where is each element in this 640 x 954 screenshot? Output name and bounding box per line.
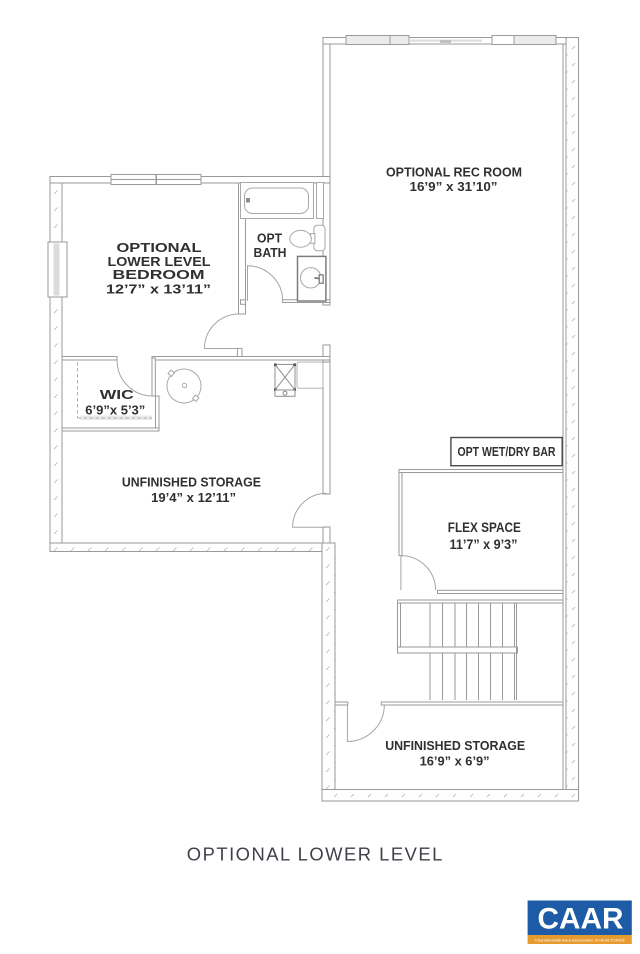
svg-text:OPTIONAL LOWER LEVEL: OPTIONAL LOWER LEVEL [187, 844, 444, 865]
svg-text:16’9” x 6’9”: 16’9” x 6’9” [420, 754, 490, 769]
svg-text:Charlottesville Area Associati: Charlottesville Area Association of REAL… [535, 939, 625, 943]
svg-text:11’7” x 9’3”: 11’7” x 9’3” [450, 537, 518, 552]
svg-text:12’7” x 13’11”: 12’7” x 13’11” [106, 282, 211, 297]
svg-text:WIC: WIC [100, 387, 135, 402]
svg-text:BATH: BATH [254, 245, 287, 260]
svg-text:BEDROOM: BEDROOM [113, 267, 205, 282]
svg-text:OPT: OPT [257, 231, 282, 246]
svg-text:OPTIONAL REC ROOM: OPTIONAL REC ROOM [386, 164, 522, 179]
svg-text:16’9” x 31’10”: 16’9” x 31’10” [410, 179, 498, 194]
svg-text:UNFINISHED STORAGE: UNFINISHED STORAGE [385, 738, 525, 753]
svg-text:19’4” x 12’11”: 19’4” x 12’11” [151, 490, 236, 505]
svg-text:CAAR: CAAR [538, 903, 624, 936]
svg-text:OPT WET/DRY BAR: OPT WET/DRY BAR [458, 444, 556, 459]
svg-text:6’9”x 5’3”: 6’9”x 5’3” [85, 403, 145, 418]
svg-text:OPTIONAL: OPTIONAL [117, 240, 202, 255]
svg-text:FLEX SPACE: FLEX SPACE [448, 520, 521, 535]
svg-text:UNFINISHED STORAGE: UNFINISHED STORAGE [122, 475, 261, 490]
